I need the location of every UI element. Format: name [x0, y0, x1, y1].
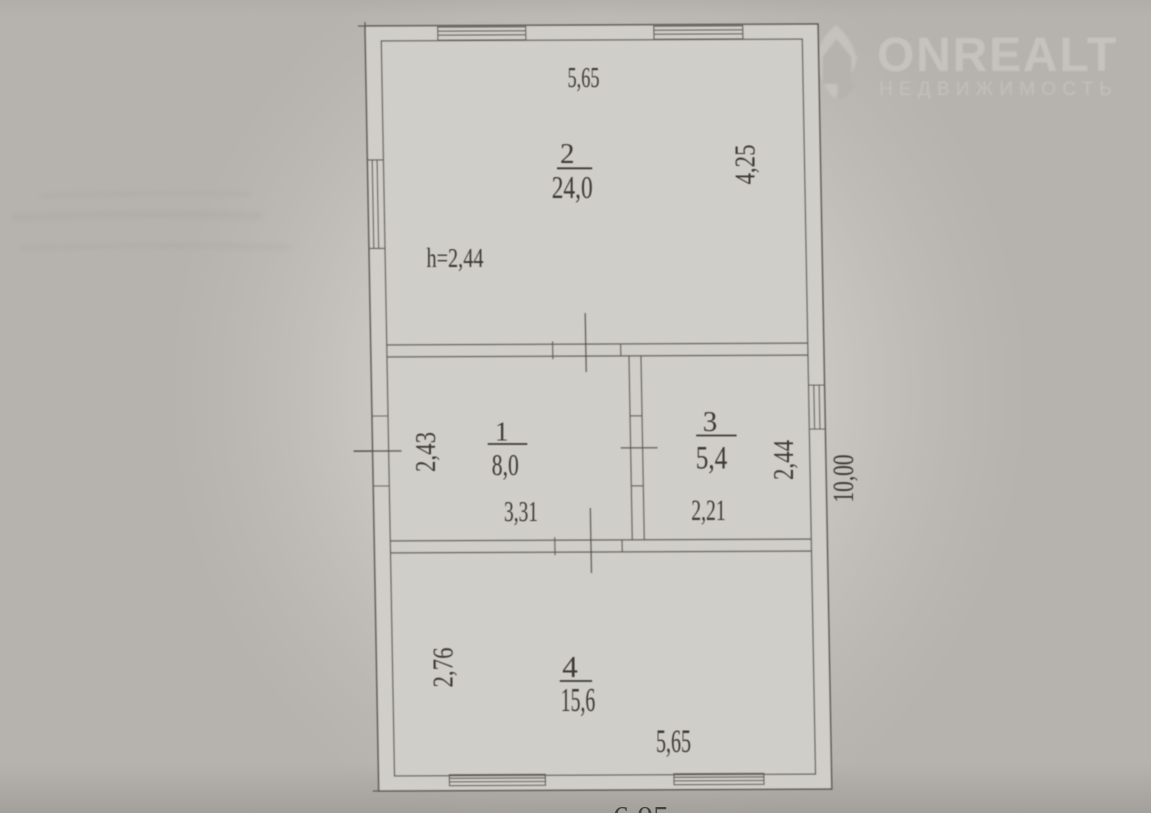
svg-text:2,76: 2,76 — [428, 648, 460, 688]
svg-text:4: 4 — [562, 649, 578, 684]
svg-text:5,65: 5,65 — [656, 724, 691, 760]
svg-text:2,21: 2,21 — [691, 494, 726, 527]
svg-text:2,43: 2,43 — [411, 432, 442, 472]
svg-text:5,4: 5,4 — [696, 440, 728, 476]
svg-text:h=2,44: h=2,44 — [427, 243, 484, 273]
svg-text:6,05: 6,05 — [613, 801, 669, 813]
svg-text:3,31: 3,31 — [504, 496, 538, 528]
svg-text:15,6: 15,6 — [561, 682, 596, 719]
svg-text:24,0: 24,0 — [552, 169, 593, 205]
svg-text:8,0: 8,0 — [492, 447, 519, 482]
svg-text:5,65: 5,65 — [568, 63, 600, 94]
svg-text:НЕДВИЖИМОСТЬ: НЕДВИЖИМОСТЬ — [879, 79, 1118, 100]
svg-text:ONREALT: ONREALT — [877, 29, 1118, 82]
svg-text:3: 3 — [703, 406, 718, 438]
svg-text:4,25: 4,25 — [731, 145, 762, 185]
svg-text:10,00: 10,00 — [827, 455, 860, 503]
svg-text:2: 2 — [560, 138, 575, 170]
svg-text:2,44: 2,44 — [768, 440, 800, 480]
svg-text:1: 1 — [495, 417, 509, 447]
